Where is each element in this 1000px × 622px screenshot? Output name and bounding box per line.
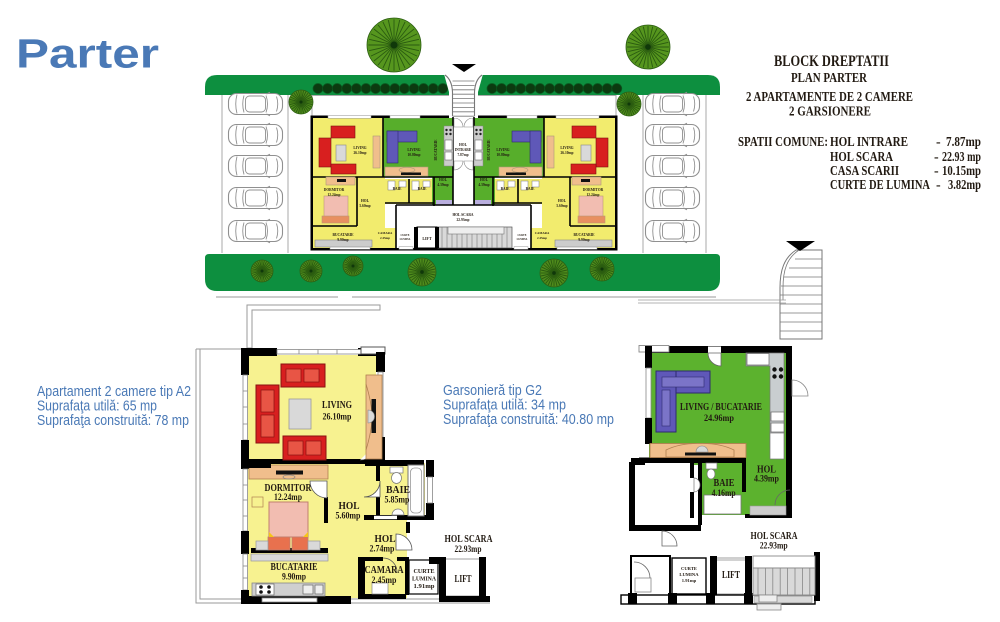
svg-text:BUCATARIE: BUCATARIE bbox=[332, 233, 354, 237]
svg-text:LIVING: LIVING bbox=[353, 146, 366, 150]
svg-text:CURTE: CURTE bbox=[681, 566, 697, 571]
svg-text:LIVING: LIVING bbox=[560, 146, 573, 150]
svg-text:5.60mp: 5.60mp bbox=[556, 204, 567, 208]
svg-text:5.60mp: 5.60mp bbox=[336, 511, 361, 521]
svg-text:DORMITOR: DORMITOR bbox=[324, 188, 345, 192]
svg-text:22.93mp: 22.93mp bbox=[760, 541, 788, 551]
svg-text:-: - bbox=[936, 135, 941, 150]
svg-text:12.24mp: 12.24mp bbox=[586, 193, 599, 197]
svg-text:BUCATARIE: BUCATARIE bbox=[573, 233, 595, 237]
svg-text:CASA SCARII: CASA SCARII bbox=[830, 164, 899, 179]
svg-text:10.15mp: 10.15mp bbox=[942, 164, 981, 179]
svg-text:2.45mp: 2.45mp bbox=[537, 236, 547, 240]
svg-text:-: - bbox=[934, 150, 939, 165]
svg-text:12.24mp: 12.24mp bbox=[274, 492, 302, 502]
svg-text:LUMINA: LUMINA bbox=[679, 572, 699, 577]
svg-text:Parter: Parter bbox=[16, 31, 159, 77]
svg-text:INTRARE: INTRARE bbox=[455, 148, 472, 152]
svg-text:HOL SCARA: HOL SCARA bbox=[452, 213, 473, 217]
svg-text:-: - bbox=[936, 178, 941, 193]
svg-text:5.60mp: 5.60mp bbox=[359, 204, 370, 208]
svg-text:22.93 mp: 22.93 mp bbox=[942, 150, 981, 165]
svg-text:CURTE: CURTE bbox=[518, 234, 527, 237]
svg-text:26.10mp: 26.10mp bbox=[560, 151, 573, 155]
svg-text:BAIE: BAIE bbox=[526, 187, 535, 191]
svg-text:2 APARTAMENTE DE 2 CAMERE: 2 APARTAMENTE DE 2 CAMERE bbox=[746, 90, 913, 105]
svg-text:CURTE DE LUMINA: CURTE DE LUMINA bbox=[830, 178, 931, 193]
svg-text:10.80mp: 10.80mp bbox=[407, 153, 420, 157]
svg-text:22.93mp: 22.93mp bbox=[456, 218, 469, 222]
svg-text:CURTE: CURTE bbox=[401, 234, 410, 237]
svg-text:4.39mp: 4.39mp bbox=[437, 183, 448, 187]
svg-text:LIVING / BUCATARIE: LIVING / BUCATARIE bbox=[680, 402, 762, 413]
svg-text:BUCATARIE: BUCATARIE bbox=[487, 139, 491, 161]
svg-text:BLOCK DREPTATII: BLOCK DREPTATII bbox=[774, 53, 889, 70]
svg-text:7.87mp: 7.87mp bbox=[946, 135, 981, 150]
svg-text:-: - bbox=[934, 164, 939, 179]
svg-text:7.87mp: 7.87mp bbox=[457, 153, 468, 157]
svg-text:2.45mp: 2.45mp bbox=[372, 575, 397, 585]
svg-text:HOL: HOL bbox=[558, 199, 567, 203]
svg-text:HOL: HOL bbox=[459, 143, 468, 147]
svg-text:LUMINA: LUMINA bbox=[412, 576, 436, 583]
svg-text:10.80mp: 10.80mp bbox=[496, 153, 509, 157]
svg-text:CURTE: CURTE bbox=[414, 568, 435, 575]
svg-text:5.85mp: 5.85mp bbox=[385, 495, 410, 505]
svg-text:CAMARA: CAMARA bbox=[535, 231, 550, 235]
svg-text:2.74mp: 2.74mp bbox=[370, 544, 395, 554]
svg-text:24.96mp: 24.96mp bbox=[704, 413, 734, 423]
svg-text:LIVING: LIVING bbox=[496, 148, 509, 152]
svg-text:HOL: HOL bbox=[439, 178, 448, 182]
svg-text:4.39mp: 4.39mp bbox=[478, 183, 489, 187]
svg-text:22.93mp: 22.93mp bbox=[455, 544, 482, 554]
svg-text:9.90mp: 9.90mp bbox=[282, 572, 306, 582]
svg-text:1.91mp: 1.91mp bbox=[414, 584, 436, 590]
svg-text:PLAN PARTER: PLAN PARTER bbox=[791, 70, 867, 85]
svg-text:4.16mp: 4.16mp bbox=[712, 488, 736, 498]
svg-text:BAIE: BAIE bbox=[418, 187, 427, 191]
svg-text:3.82mp: 3.82mp bbox=[948, 178, 981, 193]
svg-text:BAIE: BAIE bbox=[501, 187, 510, 191]
svg-text:9.90mp: 9.90mp bbox=[578, 238, 589, 242]
svg-text:1.91mp: 1.91mp bbox=[682, 578, 697, 583]
svg-text:LIFT: LIFT bbox=[722, 570, 740, 581]
svg-text:26.10mp: 26.10mp bbox=[353, 151, 366, 155]
svg-text:LUMINA: LUMINA bbox=[517, 238, 528, 241]
svg-text:LIFT: LIFT bbox=[422, 236, 432, 241]
svg-text:2 GARSIONERE: 2 GARSIONERE bbox=[789, 105, 871, 120]
svg-text:Suprafaţa construită: 78 mp: Suprafaţa construită: 78 mp bbox=[37, 413, 189, 429]
svg-text:12.24mp: 12.24mp bbox=[327, 193, 340, 197]
svg-text:HOL INTRARE: HOL INTRARE bbox=[830, 135, 908, 150]
svg-text:HOL: HOL bbox=[361, 199, 370, 203]
svg-text:26.10mp: 26.10mp bbox=[323, 412, 352, 422]
svg-text:2.45mp: 2.45mp bbox=[380, 236, 390, 240]
svg-text:LIVING: LIVING bbox=[322, 400, 352, 411]
svg-text:HOL SCARA: HOL SCARA bbox=[830, 150, 894, 165]
svg-text:LIFT: LIFT bbox=[455, 574, 472, 585]
svg-text:4.39mp: 4.39mp bbox=[754, 474, 779, 484]
svg-text:LUMINA: LUMINA bbox=[400, 238, 411, 241]
svg-text:BAIE: BAIE bbox=[393, 187, 402, 191]
svg-text:CAMARA: CAMARA bbox=[378, 231, 393, 235]
svg-text:Suprafaţa construită: 40.80 mp: Suprafaţa construită: 40.80 mp bbox=[443, 412, 614, 428]
svg-text:9.90mp: 9.90mp bbox=[337, 238, 348, 242]
svg-text:DORMITOR: DORMITOR bbox=[583, 188, 604, 192]
svg-text:LIVING: LIVING bbox=[407, 148, 420, 152]
svg-text:SPATII COMUNE:: SPATII COMUNE: bbox=[738, 135, 828, 150]
svg-text:BUCATARIE: BUCATARIE bbox=[434, 139, 438, 161]
svg-text:HOL: HOL bbox=[480, 178, 489, 182]
